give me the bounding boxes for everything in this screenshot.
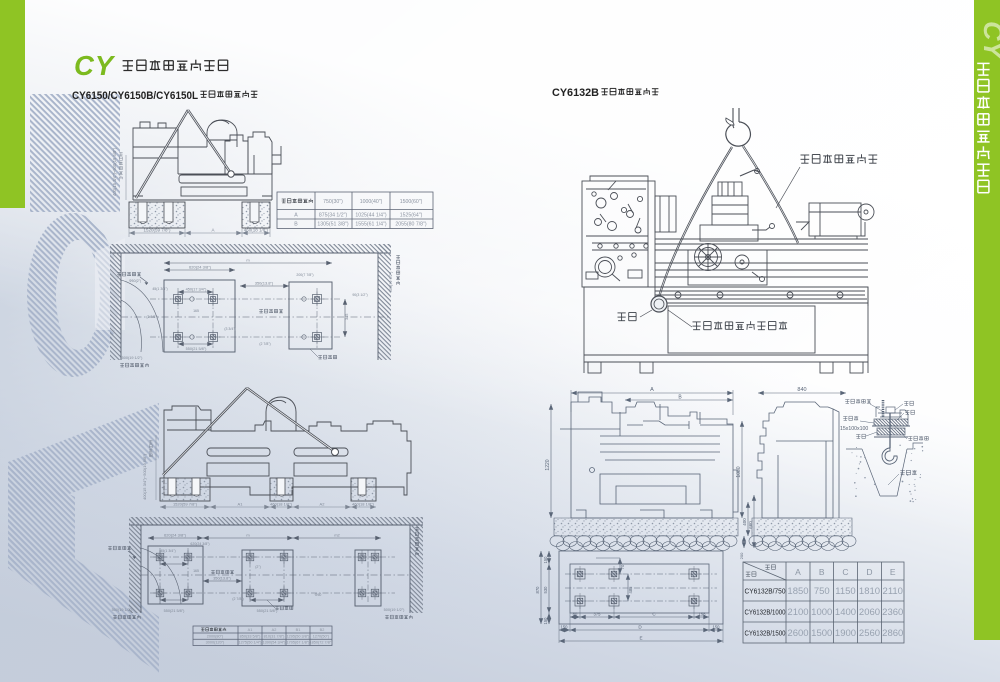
svg-text:875(34 1/2"): 875(34 1/2") bbox=[319, 213, 348, 219]
svg-text:(2 7/8"): (2 7/8") bbox=[232, 597, 243, 601]
svg-text:750(30"): 750(30") bbox=[323, 199, 343, 205]
svg-text:500(19 1/2"): 500(19 1/2") bbox=[112, 608, 134, 612]
svg-text:840: 840 bbox=[797, 387, 806, 393]
svg-text:1520(59 7/8"): 1520(59 7/8") bbox=[143, 228, 171, 233]
svg-text:620(24 3/8"): 620(24 3/8") bbox=[164, 533, 187, 538]
svg-text:E: E bbox=[890, 567, 896, 577]
svg-text:2360: 2360 bbox=[882, 607, 903, 618]
svg-text:500(19 1/2"): 500(19 1/2") bbox=[384, 608, 406, 612]
svg-text:150: 150 bbox=[713, 625, 721, 630]
svg-text:150: 150 bbox=[543, 617, 548, 625]
svg-text:1080: 1080 bbox=[736, 466, 742, 477]
svg-text:A2: A2 bbox=[320, 502, 326, 507]
svg-text:750: 750 bbox=[814, 586, 830, 597]
svg-text:70: 70 bbox=[620, 564, 625, 569]
svg-text:485: 485 bbox=[628, 586, 633, 594]
svg-text:1305(51 3/8"): 1305(51 3/8") bbox=[317, 222, 349, 228]
svg-text:1275(50 1/4"): 1275(50 1/4") bbox=[239, 641, 263, 645]
svg-text:2060: 2060 bbox=[859, 607, 880, 618]
svg-text:200: 200 bbox=[739, 552, 744, 559]
svg-text:A: A bbox=[294, 213, 298, 219]
svg-text:500(19 1/2"): 500(19 1/2") bbox=[389, 271, 393, 293]
svg-text:1525(64"): 1525(64") bbox=[400, 213, 423, 219]
svg-text:1150: 1150 bbox=[835, 586, 855, 597]
svg-text:2860: 2860 bbox=[882, 628, 903, 639]
svg-text:15x100x100: 15x100x100 bbox=[840, 426, 868, 432]
svg-text:B: B bbox=[819, 567, 825, 577]
svg-text:350(13.8"): 350(13.8") bbox=[255, 281, 274, 286]
svg-text:(3 3/4"): (3 3/4") bbox=[224, 327, 235, 331]
svg-text:m2: m2 bbox=[334, 533, 340, 538]
svg-text:550(21 5/8"): 550(21 5/8") bbox=[164, 609, 186, 613]
svg-text:1400: 1400 bbox=[835, 607, 856, 618]
svg-text:165: 165 bbox=[193, 309, 199, 313]
svg-text:1220: 1220 bbox=[545, 459, 551, 470]
svg-text:550(21 5/8"): 550(21 5/8") bbox=[257, 609, 279, 613]
svg-text:460(18 1/8"): 460(18 1/8") bbox=[352, 502, 375, 507]
svg-text:1270(50"): 1270(50") bbox=[313, 634, 330, 638]
svg-text:400: 400 bbox=[742, 518, 747, 526]
svg-text:80: 80 bbox=[573, 612, 578, 617]
svg-text:B2: B2 bbox=[320, 628, 325, 632]
svg-text:1555(61 1/4"): 1555(61 1/4") bbox=[355, 222, 387, 228]
svg-text:345: 345 bbox=[345, 314, 349, 320]
svg-text:A: A bbox=[211, 228, 214, 233]
svg-text:550(21 5/8"): 550(21 5/8") bbox=[186, 347, 208, 351]
svg-text:3000(120"): 3000(120") bbox=[206, 641, 225, 645]
svg-text:1295(50 3/8"): 1295(50 3/8") bbox=[287, 634, 311, 638]
svg-text:1390(54 3/4"): 1390(54 3/4") bbox=[263, 641, 287, 645]
svg-text:(2 7/8"): (2 7/8") bbox=[259, 342, 270, 346]
svg-text:Φ50(2"): Φ50(2") bbox=[129, 279, 141, 283]
svg-text:1850: 1850 bbox=[787, 586, 808, 597]
svg-text:450(17 3/4"): 450(17 3/4") bbox=[186, 288, 208, 292]
svg-text:A: A bbox=[795, 567, 801, 577]
svg-text:A1: A1 bbox=[248, 628, 253, 632]
svg-text:158: 158 bbox=[699, 612, 707, 617]
svg-text:A: A bbox=[650, 387, 654, 393]
svg-text:Φ50: Φ50 bbox=[315, 593, 322, 597]
svg-text:1000(40"): 1000(40") bbox=[360, 199, 383, 205]
svg-text:2000(80"): 2000(80") bbox=[207, 634, 224, 638]
svg-text:(2 7/8"): (2 7/8") bbox=[146, 315, 157, 319]
svg-text:CY6132B/1000: CY6132B/1000 bbox=[745, 610, 786, 617]
svg-text:45(1 3/4"): 45(1 3/4") bbox=[152, 287, 167, 291]
svg-text:1520(59 7/8"): 1520(59 7/8") bbox=[173, 502, 198, 507]
svg-text:620(24 3/8"): 620(24 3/8") bbox=[190, 542, 209, 546]
svg-text:165: 165 bbox=[193, 569, 199, 573]
svg-text:810(31 7/8"): 810(31 7/8") bbox=[264, 634, 286, 638]
svg-text:90(3 1/2"): 90(3 1/2") bbox=[352, 293, 367, 297]
svg-text:2110: 2110 bbox=[883, 586, 903, 597]
svg-text:375: 375 bbox=[594, 612, 602, 617]
svg-text:CY: CY bbox=[978, 21, 1000, 61]
svg-text:870: 870 bbox=[535, 586, 540, 594]
svg-text:530: 530 bbox=[543, 586, 548, 594]
svg-text:460(18 1/8"): 460(18 1/8") bbox=[270, 502, 293, 507]
svg-text:B: B bbox=[294, 222, 298, 228]
svg-text:CY: CY bbox=[74, 50, 116, 81]
svg-text:500(19 1/2"): 500(19 1/2") bbox=[122, 356, 144, 360]
svg-text:1500(60"): 1500(60") bbox=[400, 199, 423, 205]
svg-text:1000: 1000 bbox=[811, 607, 832, 618]
svg-text:CY6132B/750: CY6132B/750 bbox=[745, 589, 786, 596]
svg-text:2560: 2560 bbox=[859, 628, 880, 639]
svg-text:150: 150 bbox=[543, 556, 548, 564]
svg-text:A1: A1 bbox=[238, 502, 244, 507]
svg-text:CY6150/CY6150B/CY6150L: CY6150/CY6150B/CY6150L bbox=[72, 90, 198, 102]
svg-text:45(1 3/4"): 45(1 3/4") bbox=[160, 549, 175, 553]
svg-text:1900: 1900 bbox=[835, 628, 856, 639]
svg-text:E: E bbox=[639, 636, 642, 641]
svg-text:200(7 7/8"): 200(7 7/8") bbox=[296, 273, 313, 277]
svg-text:D: D bbox=[866, 567, 872, 577]
svg-text:460(18 1/8"): 460(18 1/8") bbox=[244, 228, 269, 233]
svg-text:1705(67 1/8"): 1705(67 1/8") bbox=[287, 641, 311, 645]
svg-text:1810: 1810 bbox=[859, 586, 880, 597]
svg-text:2055(80 7/8"): 2055(80 7/8") bbox=[395, 222, 427, 228]
svg-text:2600: 2600 bbox=[787, 628, 808, 639]
svg-text:A2: A2 bbox=[272, 628, 277, 632]
svg-text:1025(44 1/4"): 1025(44 1/4") bbox=[355, 213, 387, 219]
svg-text:850(33 5/8"): 850(33 5/8") bbox=[240, 634, 262, 638]
svg-text:400(15 3/4")~500(19 5/8"): 400(15 3/4")~500(19 5/8") bbox=[112, 147, 117, 196]
svg-text:2100: 2100 bbox=[787, 607, 808, 618]
svg-text:350(13.8"): 350(13.8") bbox=[213, 577, 231, 581]
svg-text:1500: 1500 bbox=[811, 628, 832, 639]
svg-text:(2"): (2") bbox=[255, 565, 261, 569]
svg-text:CY6132B/1500: CY6132B/1500 bbox=[745, 631, 786, 638]
svg-text:400(15 3/4")~500(19 5/8"): 400(15 3/4")~500(19 5/8") bbox=[142, 453, 147, 500]
svg-text:CY6132B: CY6132B bbox=[552, 87, 599, 99]
svg-text:C: C bbox=[842, 567, 848, 577]
svg-text:B1: B1 bbox=[296, 628, 301, 632]
svg-text:620(24 3/8"): 620(24 3/8") bbox=[189, 265, 212, 270]
svg-text:150: 150 bbox=[561, 625, 569, 630]
svg-text:1850(72 7/8"): 1850(72 7/8") bbox=[310, 641, 334, 645]
